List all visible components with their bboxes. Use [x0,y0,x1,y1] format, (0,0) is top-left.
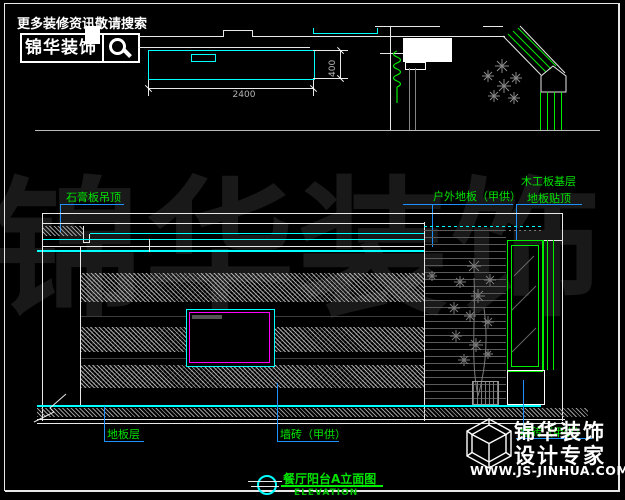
wall-hatch-band [81,273,424,302]
plan-niche-line [313,28,314,34]
ceiling-hatch-strip [42,226,83,236]
plan-bottom-line [35,130,600,131]
label-gypsum-ceiling: 石膏板吊顶 [66,192,121,204]
label-wood-board-1: 木工板基层 [521,176,576,188]
pot-icon [472,381,499,405]
dim-extension-line [313,50,348,51]
window-side-line [547,240,548,370]
plan-niche-line [313,33,378,34]
cad-drawing-page: 锦华装饰 更多装修资讯敬请搜索 锦华装饰 2400 400 [0,0,625,500]
ceiling-line-cyan-thick [37,250,424,252]
tv-niche-inner [189,312,270,363]
search-button[interactable] [104,35,138,61]
dim-line [340,50,341,78]
plan-wall-line [252,36,505,37]
elevation-top-line [42,213,563,214]
hidden-line-cyan [424,226,541,227]
break-line [30,392,70,424]
section-marker-icon [257,475,277,495]
ceiling-line [42,246,424,247]
plan-notch-line [223,30,253,31]
elevation-left-border [42,213,43,421]
label-wall-tile: 墙砖（甲供） [280,429,346,441]
floor-line-cyan [37,405,541,407]
tv-reflection [192,315,222,319]
plan-niche-line [377,28,378,34]
cursor-blob [85,26,100,44]
plan-notch-line [223,30,224,37]
ceiling-step-line [83,226,84,243]
cube-logo-icon [462,417,516,469]
plan-door-line [415,68,416,130]
search-hint-text: 更多装修资讯敬请搜索 [17,13,147,32]
label-outdoor-floor: 户外地板（甲供） [433,191,521,203]
plan-column-line [547,92,548,130]
frame-right-border [618,3,620,491]
elevation-right-border [562,213,563,421]
window-side-line [553,240,554,370]
plan-wall-line [138,47,310,48]
plan-light-fixture [191,54,216,62]
leader-line [277,383,278,441]
column-top-line [541,240,562,241]
section-marker-line [251,486,279,487]
plant-icon [426,248,518,398]
leader-line [516,205,517,241]
ceiling-line-cyan [42,239,424,240]
search-icon-handle [122,48,132,58]
frame-top-border [5,3,619,4]
dim-extension-line [313,78,348,79]
leader-line [277,441,339,442]
title-underline [281,485,383,487]
leader-line [104,406,105,441]
ceiling-line [42,223,424,224]
label-floor-layer: 地板层 [107,429,140,441]
section-marker-line [248,481,282,482]
plan-ceiling-outline [148,50,315,80]
drawing-subtitle: ELEVATION [294,488,358,498]
ceiling-line-cyan [90,233,424,234]
frame-left-border [4,3,5,491]
plan-wall-line [138,36,223,37]
plan-cabinet-block [403,38,452,62]
plan-column-line [554,92,555,130]
search-box[interactable]: 锦华装饰 [20,33,140,63]
dim-depth-text: 400 [328,60,338,77]
tv-niche-outer [186,309,275,367]
leader-line [403,204,513,205]
plan-notch-line [252,30,253,37]
plan-door-line [409,68,410,130]
plan-corner-column [495,18,575,138]
dim-width-text: 2400 [214,90,274,100]
dim-line [148,88,313,89]
leader-line [60,204,124,205]
footer-website[interactable]: WWW.JS-JINHUA.COM [470,463,625,478]
window-side-line [543,240,544,370]
plan-spring-symbol [388,50,406,104]
plan-column-line [561,92,562,130]
leader-line [516,204,582,205]
ceiling-step-line [149,239,150,252]
leader-line [104,441,144,442]
plan-wall-line [375,26,440,27]
plan-column-line [540,92,541,130]
floor-hatch-strip [37,408,588,417]
wall-hatch-band [81,365,424,388]
